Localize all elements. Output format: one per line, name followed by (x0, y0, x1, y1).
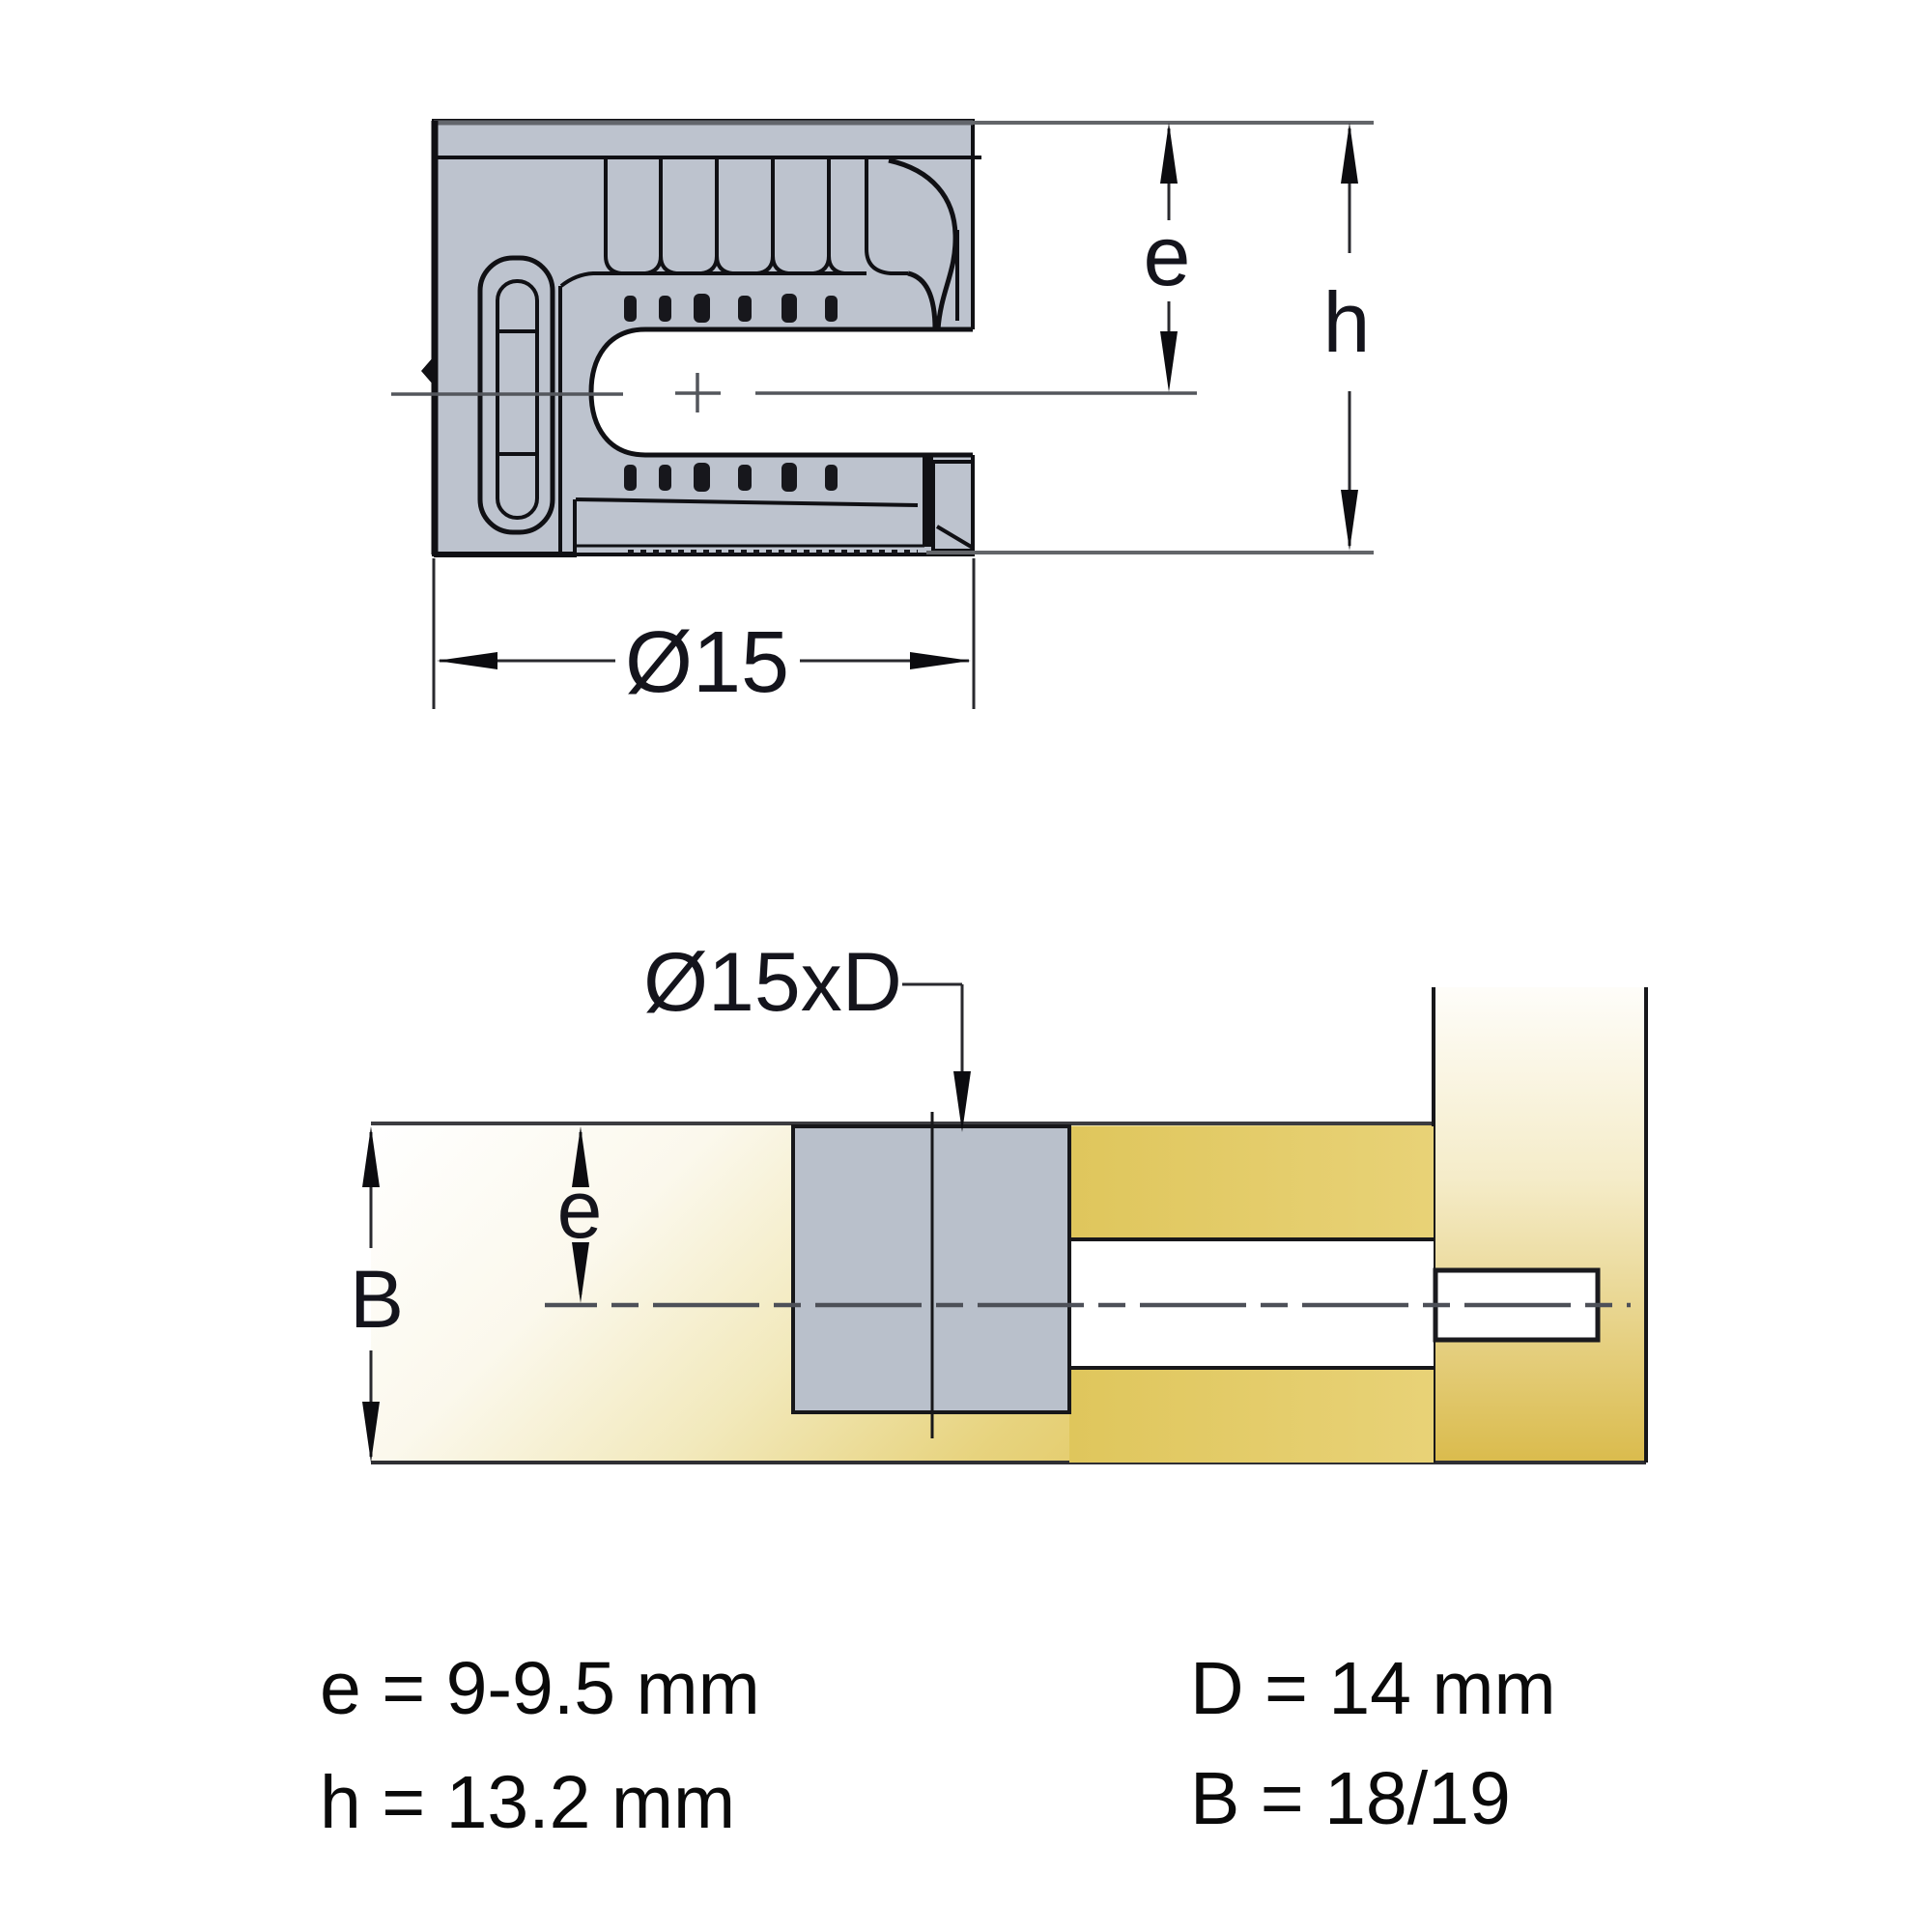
svg-text:B = 18/19: B = 18/19 (1190, 1757, 1511, 1840)
svg-text:Ø15xD: Ø15xD (643, 936, 902, 1029)
svg-text:e: e (557, 1164, 603, 1255)
svg-text:h: h (1323, 274, 1371, 370)
svg-text:B: B (350, 1254, 404, 1345)
svg-text:e = 9-9.5 mm: e = 9-9.5 mm (320, 1647, 760, 1730)
svg-text:Ø15: Ø15 (625, 614, 789, 711)
svg-text:h = 13.2 mm: h = 13.2 mm (320, 1761, 735, 1844)
svg-text:e: e (1144, 208, 1191, 303)
svg-text:D = 14 mm: D = 14 mm (1190, 1647, 1556, 1730)
